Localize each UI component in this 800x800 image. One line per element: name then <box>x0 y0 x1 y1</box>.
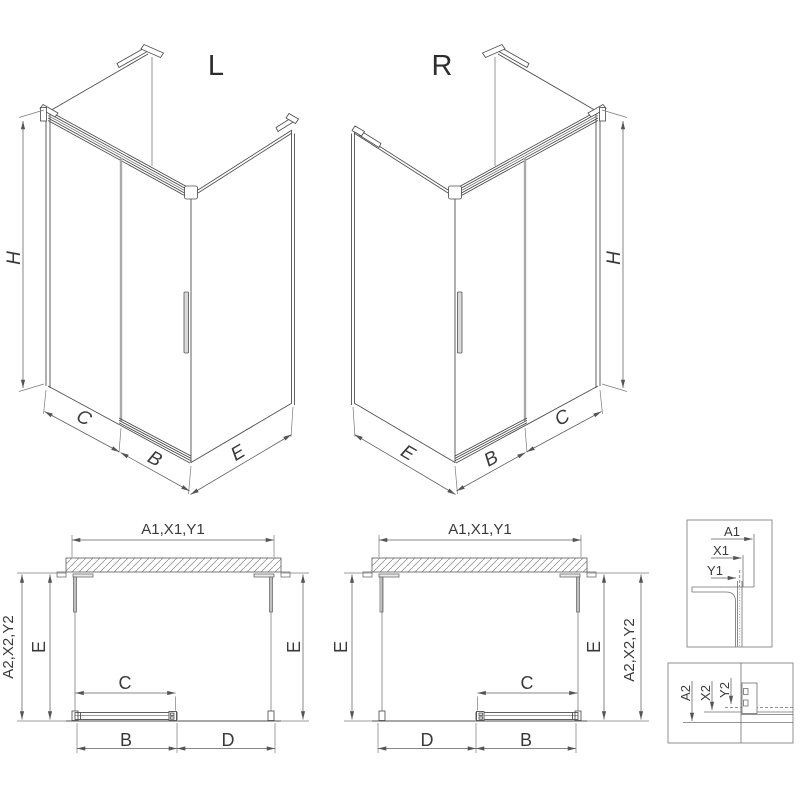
dim-label-a2-r: A2,X2,Y2 <box>621 618 638 681</box>
drawing-canvas: L H C B E <box>0 0 800 800</box>
corner-connector-r <box>449 186 462 199</box>
dim-label-a1-l: A1,X1,Y1 <box>141 521 204 538</box>
dim-label-d-plan-r: D <box>421 730 434 750</box>
corner-connector-l <box>185 186 198 199</box>
dim-label-y1-detail: Y1 <box>707 563 723 578</box>
dim-label-x1-detail: X1 <box>713 543 729 558</box>
dim-label-e-left-r: E <box>331 641 351 653</box>
dim-label-h-l: H <box>4 251 25 265</box>
view-title-r: R <box>432 50 453 82</box>
door-handle-l <box>184 292 189 353</box>
dim-label-a1-r: A1,X1,Y1 <box>448 521 511 538</box>
view-title-l: L <box>208 50 224 82</box>
dim-label-c-plan-r: C <box>521 673 534 693</box>
dim-label-b-plan-r: B <box>520 730 532 750</box>
dim-label-e-right-r: E <box>584 641 604 653</box>
dim-label-c-plan-l: C <box>119 673 132 693</box>
dim-label-d-plan-l: D <box>222 730 235 750</box>
sliding-door-plan-r <box>476 712 578 721</box>
dim-label-h-r: H <box>604 251 625 265</box>
drawing-sheet: L H C B E <box>0 0 800 800</box>
dim-label-x2-detail: X2 <box>698 685 713 701</box>
wall-hatch-l <box>66 558 281 572</box>
dim-label-e-left-l: E <box>29 641 49 653</box>
wall-hatch-r <box>372 558 587 572</box>
sliding-door-plan-l <box>75 712 177 721</box>
dim-label-y2-detail: Y2 <box>717 682 732 698</box>
dim-label-a2-detail: A2 <box>678 685 693 701</box>
dim-label-e-right-l: E <box>284 641 304 653</box>
dim-label-a1-detail: A1 <box>724 524 740 539</box>
dim-label-a2-l: A2,X2,Y2 <box>0 615 17 678</box>
door-handle-r <box>457 292 462 353</box>
dim-label-b-plan-l: B <box>120 730 132 750</box>
